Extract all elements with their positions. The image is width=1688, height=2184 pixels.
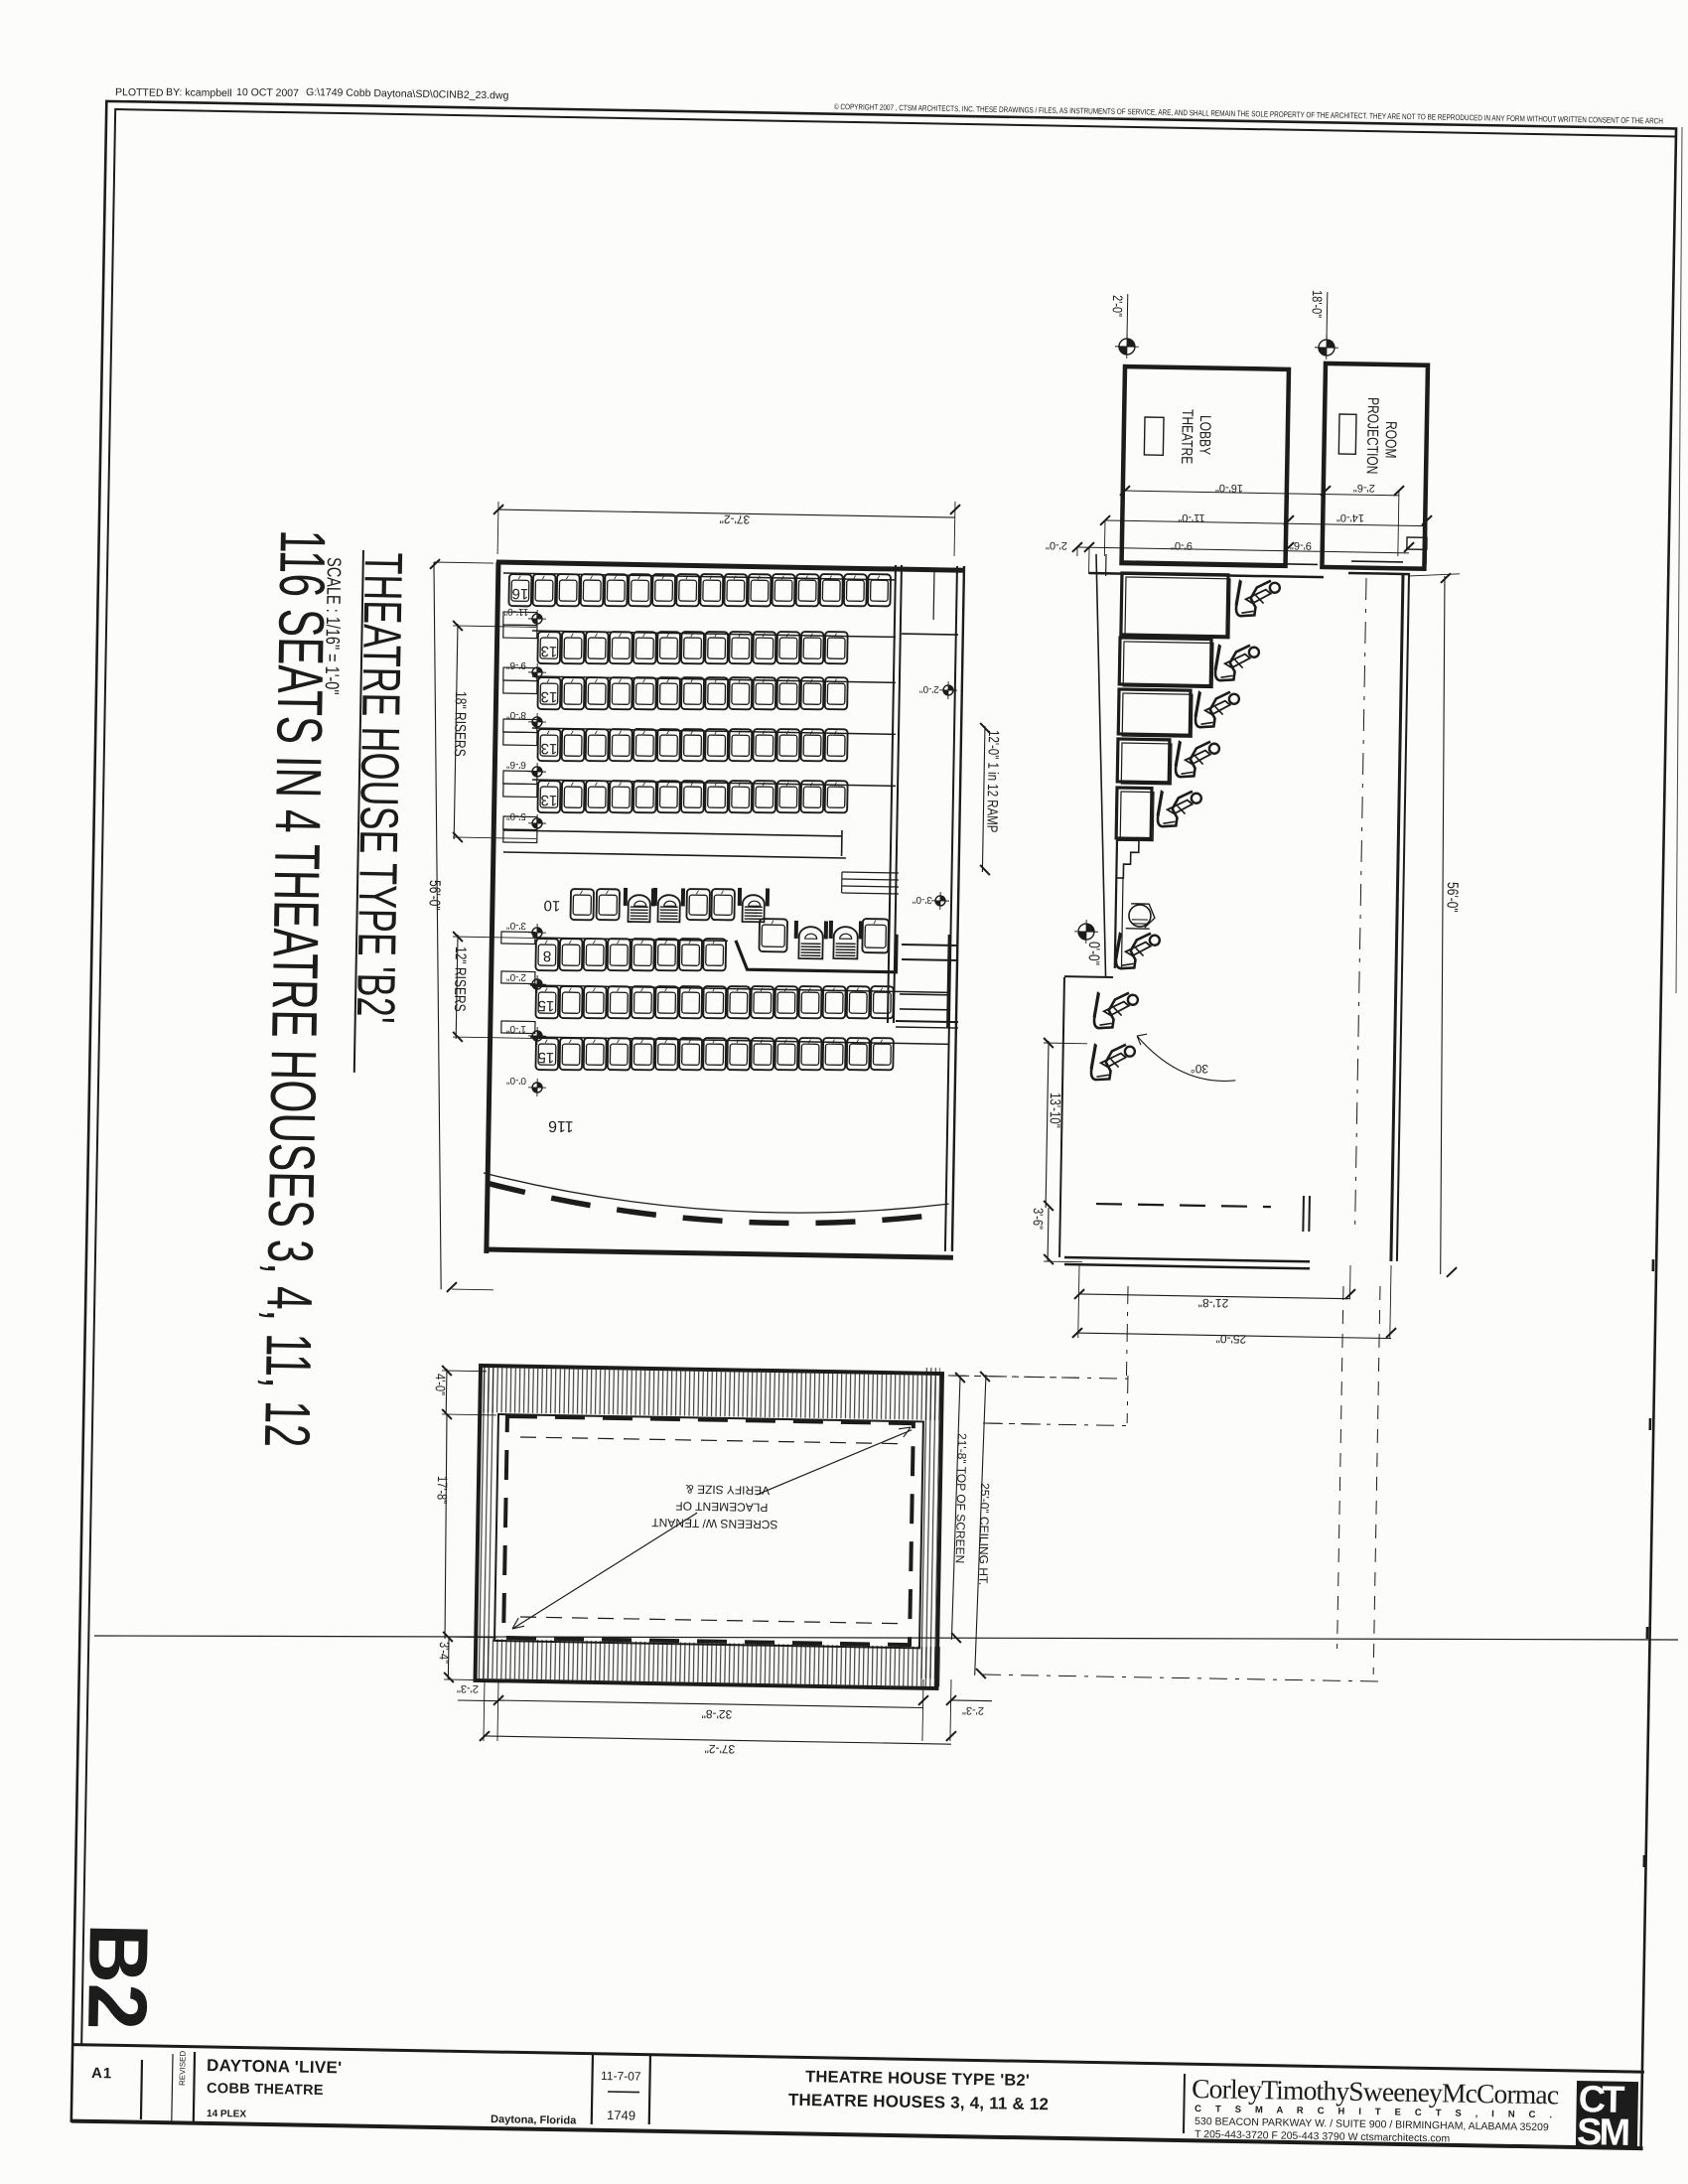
svg-text:21'-8": 21'-8" [1198, 1296, 1229, 1311]
svg-text:ROOM: ROOM [1382, 421, 1401, 459]
svg-text:116: 116 [548, 1117, 574, 1134]
svg-text:18" RISERS: 18" RISERS [451, 691, 470, 757]
svg-text:REVISED: REVISED [178, 2051, 188, 2086]
svg-text:9'-0": 9'-0" [1171, 539, 1193, 551]
svg-text:56'-0": 56'-0" [1444, 882, 1462, 913]
svg-text:COBB THEATRE: COBB THEATRE [207, 2081, 324, 2099]
svg-text:11'-0": 11'-0" [503, 606, 528, 617]
svg-text:8: 8 [543, 947, 552, 964]
svg-text:37'-2": 37'-2" [705, 1742, 736, 1757]
svg-text:1'-0": 1'-0" [505, 1023, 526, 1034]
svg-text:25'-0": 25'-0" [1216, 1332, 1247, 1347]
svg-text:3'-0": 3'-0" [912, 894, 932, 905]
svg-text:12" RISERS: 12" RISERS [452, 946, 471, 1012]
svg-text:16: 16 [511, 585, 528, 602]
svg-text:9'-6": 9'-6" [1290, 539, 1312, 551]
svg-text:6'-6": 6'-6" [505, 759, 526, 770]
svg-text:11'-0": 11'-0" [1178, 511, 1205, 523]
svg-text:32'-8": 32'-8" [702, 1707, 733, 1722]
svg-text:2'-6": 2'-6" [1353, 482, 1375, 494]
svg-text:A1: A1 [91, 2065, 112, 2082]
svg-text:2'-3": 2'-3" [962, 1704, 984, 1716]
svg-text:BY: kcampbell: BY: kcampbell [166, 86, 232, 99]
svg-text:13'-10": 13'-10" [1047, 1092, 1063, 1128]
svg-text:SCREENS W/ TENANT: SCREENS W/ TENANT [651, 1516, 778, 1531]
svg-text:VERIFY SIZE &: VERIFY SIZE & [686, 1482, 771, 1497]
svg-text:5'-0": 5'-0" [505, 810, 526, 821]
svg-text:THEATRE: THEATRE [1179, 409, 1197, 464]
svg-text:13: 13 [540, 643, 557, 659]
svg-text:3'-0": 3'-0" [505, 920, 526, 931]
svg-text:8'-0": 8'-0" [505, 709, 526, 720]
svg-text:15: 15 [537, 1049, 554, 1066]
svg-text:0'-0": 0'-0" [1085, 942, 1103, 965]
svg-text:2'-0": 2'-0" [918, 683, 939, 694]
svg-text:30°: 30° [1191, 1062, 1209, 1076]
svg-text:10: 10 [543, 897, 560, 914]
svg-text:SM: SM [1577, 2111, 1629, 2154]
svg-text:2'-0": 2'-0" [1046, 539, 1067, 551]
svg-text:13: 13 [540, 740, 557, 757]
svg-text:B2: B2 [70, 1923, 166, 2031]
svg-text:15: 15 [537, 997, 554, 1014]
svg-text:0'-0": 0'-0" [505, 1075, 526, 1086]
svg-text:56'-0": 56'-0" [426, 880, 444, 911]
svg-text:LOBBY: LOBBY [1196, 415, 1215, 455]
svg-text:2'-0": 2'-0" [505, 971, 526, 982]
svg-text:DAYTONA 'LIVE': DAYTONA 'LIVE' [207, 2056, 343, 2077]
svg-text:13: 13 [540, 792, 557, 808]
svg-text:14'-0": 14'-0" [1336, 511, 1364, 523]
svg-text:Daytona, Florida: Daytona, Florida [491, 2113, 577, 2127]
svg-text:3'-4": 3'-4" [436, 1642, 452, 1664]
svg-text:11-7-07: 11-7-07 [601, 2069, 641, 2084]
svg-text:PLOTTED: PLOTTED [115, 86, 164, 99]
svg-text:1749: 1749 [607, 2108, 635, 2123]
svg-text:PROJECTION: PROJECTION [1363, 397, 1382, 475]
svg-text:37'-2": 37'-2" [720, 512, 751, 527]
svg-text:14 PLEX: 14 PLEX [207, 2109, 247, 2120]
svg-text:4'-0": 4'-0" [432, 1374, 448, 1395]
svg-text:2'-0": 2'-0" [1109, 295, 1125, 317]
svg-text:16'-0": 16'-0" [1215, 482, 1243, 494]
svg-text:10 OCT 2007: 10 OCT 2007 [236, 86, 299, 99]
svg-text:13: 13 [540, 688, 557, 705]
svg-text:9'-6": 9'-6" [505, 659, 526, 670]
svg-text:17'-8": 17'-8" [434, 1476, 450, 1504]
svg-text:3'-6": 3'-6" [1030, 1208, 1046, 1230]
svg-text:PLACEMENT OF: PLACEMENT OF [675, 1499, 768, 1515]
svg-text:2'-3": 2'-3" [457, 1682, 479, 1694]
svg-text:21'-8" TOP OF SCREEN: 21'-8" TOP OF SCREEN [953, 1433, 969, 1563]
svg-text:12'-0" 1 in 12 RAMP: 12'-0" 1 in 12 RAMP [984, 730, 1003, 833]
svg-text:25'-0" CEILING HT.: 25'-0" CEILING HT. [976, 1483, 992, 1585]
svg-text:18'-0": 18'-0" [1309, 290, 1325, 318]
